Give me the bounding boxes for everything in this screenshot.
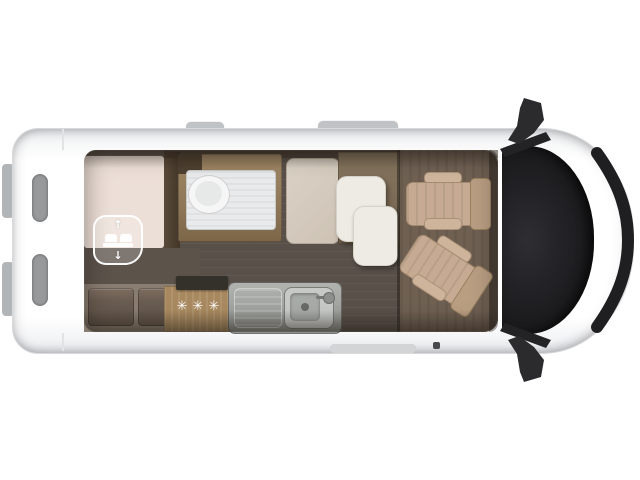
bed-base-bar-icon [103,243,133,247]
drop-down-bed-icon: ↑ ↓ [93,215,143,265]
table-panel-extension [353,206,398,266]
floorplan-canvas: ✳✳✳ ↑ ↓ [0,0,640,480]
roof-antenna [433,342,440,349]
toilet-lid [195,181,222,206]
side-step [330,344,416,353]
passenger-seat-backrest [470,178,491,230]
roof-seam-bottom [62,333,64,351]
bed-icon-down-arrow: ↓ [113,250,122,261]
bed-icon-up-arrow: ↑ [113,219,122,230]
roof-seam-top [62,129,64,150]
rear-door-window-bottom [32,254,48,306]
hob-glass-lid [234,288,282,328]
sink-drain [301,303,309,311]
hob-control-panel [176,276,228,290]
gas-burners-icon: ✳✳✳ [166,297,230,317]
wardrobe [286,158,340,244]
bench-cushion-left [88,288,134,326]
bed-icon-glyph [103,234,133,247]
pillow-left-icon [105,234,117,242]
passenger-swivel-seat [404,166,492,236]
pillow-right-icon [120,234,132,242]
rear-door-window-top [32,174,48,222]
faucet [323,292,335,304]
